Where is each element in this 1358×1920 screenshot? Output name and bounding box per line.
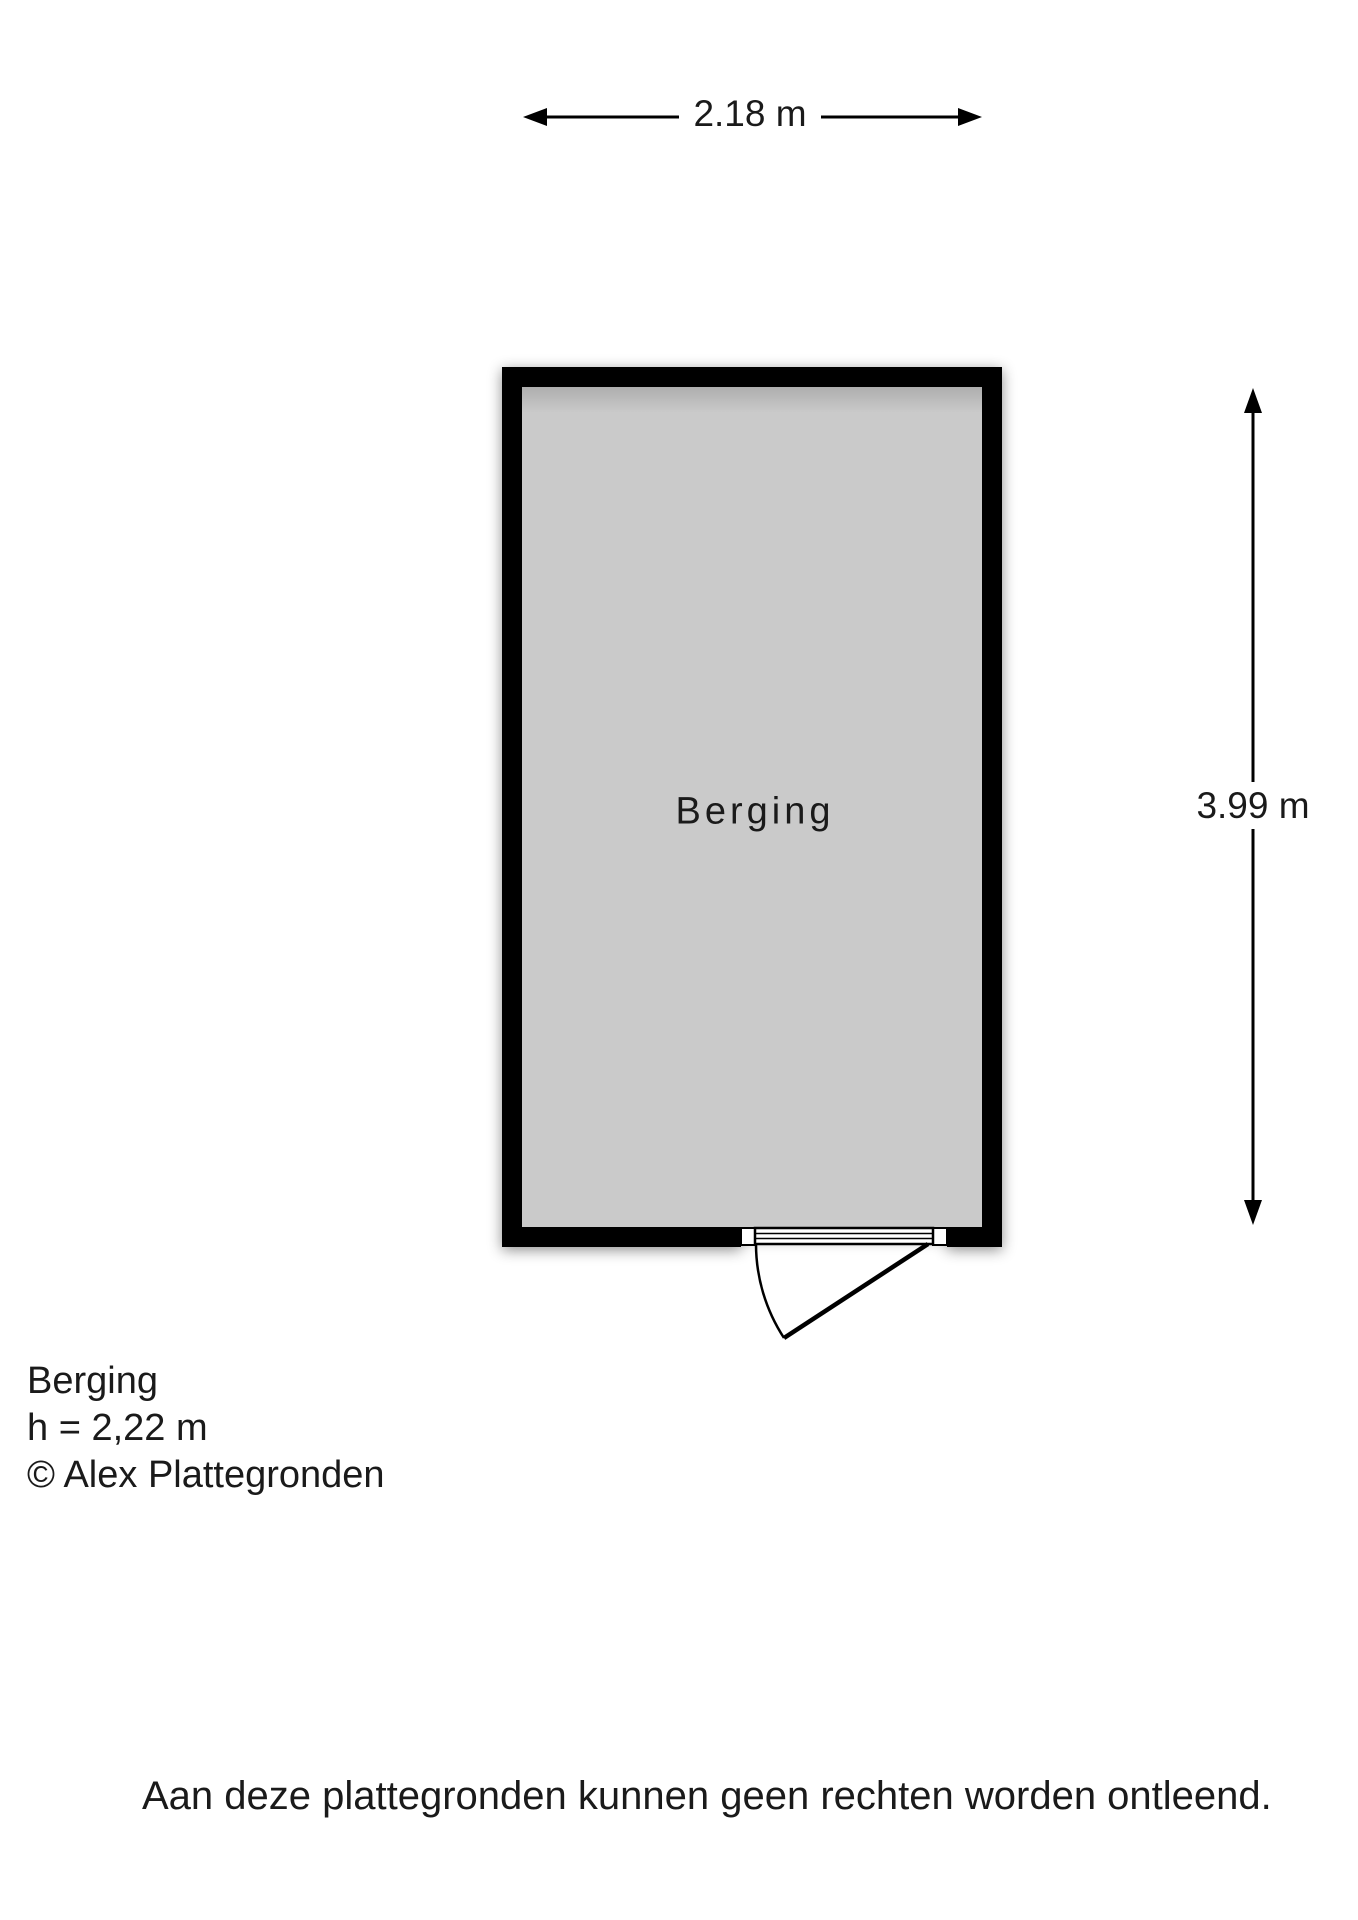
door-jamb-right xyxy=(933,1228,947,1245)
wall-bottom-left-segment xyxy=(502,1227,741,1247)
height-arrowhead-bottom xyxy=(1244,1200,1262,1225)
door-jamb-left xyxy=(741,1228,755,1245)
wall-top xyxy=(502,367,1002,387)
wall-bottom-right-segment xyxy=(947,1227,1002,1247)
height-dimension-label: 3.99 m xyxy=(1190,785,1315,827)
width-dimension-label: 2.18 m xyxy=(687,93,812,135)
wall-left xyxy=(502,367,522,1247)
door-swing-arc xyxy=(756,1244,784,1338)
legend-ceiling-height: h = 2,22 m xyxy=(27,1405,385,1452)
legend-copyright: © Alex Plattegronden xyxy=(27,1452,385,1499)
width-arrowhead-left xyxy=(523,108,547,126)
disclaimer-text: Aan deze plattegronden kunnen geen recht… xyxy=(142,1774,1272,1819)
door xyxy=(741,1228,947,1338)
legend-block: Berging h = 2,22 m © Alex Plattegronden xyxy=(27,1358,385,1499)
width-arrowhead-right xyxy=(958,108,982,126)
door-panel xyxy=(755,1228,933,1244)
door-leaf xyxy=(784,1244,928,1338)
room-label: Berging xyxy=(676,791,835,834)
height-arrowhead-top xyxy=(1244,388,1262,413)
legend-room-name: Berging xyxy=(27,1358,385,1405)
floorplan-drawing xyxy=(0,0,1358,1920)
floorplan-page: 2.18 m 3.99 m Berging Berging h = 2,22 m… xyxy=(0,0,1358,1920)
floor-inner-shadow xyxy=(512,387,993,413)
wall-right xyxy=(982,367,1002,1247)
